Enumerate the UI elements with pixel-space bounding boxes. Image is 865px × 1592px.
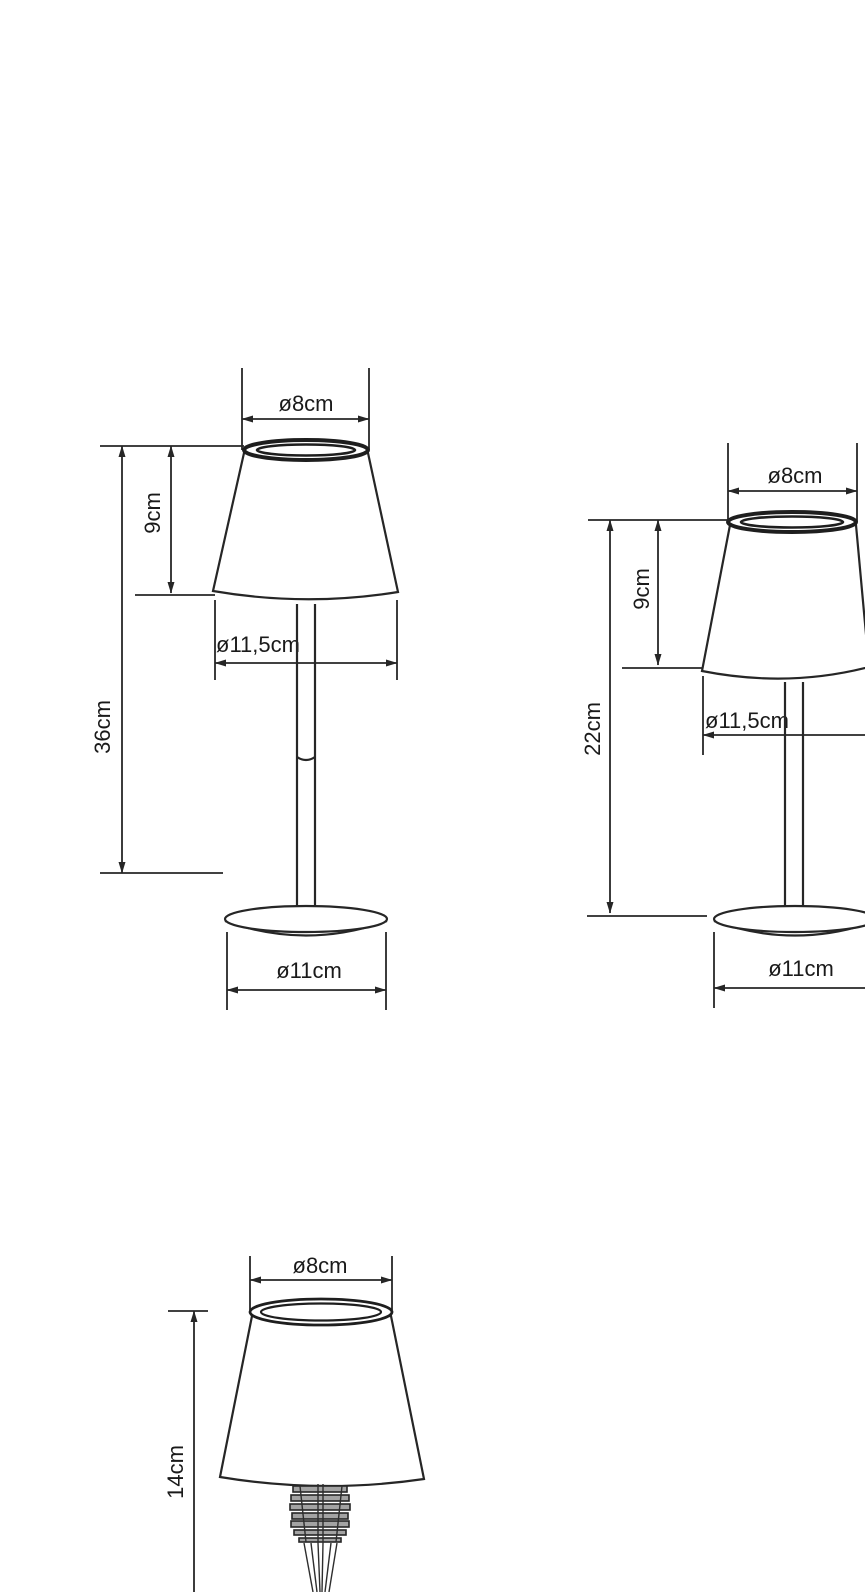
shade-top-ring-outer — [728, 512, 856, 532]
dimension-label-total-height: 14cm — [163, 1445, 188, 1499]
dimension-label-shade-height: 9cm — [140, 492, 165, 534]
dimension-label-total-height: 36cm — [90, 700, 115, 754]
dimension-label-total-height: 22cm — [580, 702, 605, 756]
dimension-label-shade-diameter: ø11,5cm — [216, 632, 300, 657]
dimension-label-shade-height: 9cm — [629, 568, 654, 610]
stopper-spike — [304, 1543, 337, 1592]
spike-prong — [322, 1543, 323, 1592]
view-lamp-tall: ø8cm 36cm 9cm ø11,5cm ø11cm — [90, 368, 398, 1010]
spike-prong — [318, 1543, 320, 1592]
stopper-rib — [291, 1521, 349, 1527]
lamp-base — [225, 906, 387, 932]
technical-drawing: ø8cm 36cm 9cm ø11,5cm ø11cm — [0, 0, 865, 1592]
lamp-shade — [213, 453, 398, 599]
dimension-label-top-diameter: ø8cm — [768, 463, 823, 488]
dimension-label-base-diameter: ø11cm — [768, 956, 834, 981]
lamp-base — [714, 906, 865, 932]
dimension-label-base-diameter: ø11cm — [276, 958, 342, 983]
lamp-shade — [702, 525, 865, 679]
stopper-rib — [290, 1504, 350, 1510]
dimension-label-shade-diameter: ø11,5cm — [705, 708, 789, 733]
dimension-label-top-diameter: ø8cm — [279, 391, 334, 416]
view-lamp-medium: ø8cm 22cm 9cm ø11,5cm ø11cm — [580, 443, 865, 1008]
stopper-ribs — [290, 1484, 350, 1543]
drawing-canvas: ø8cm 36cm 9cm ø11,5cm ø11cm — [0, 0, 865, 1592]
view-lamp-bottle-stopper: ø8cm 14cm — [163, 1253, 424, 1592]
stopper-rib — [294, 1530, 346, 1535]
lamp-shade — [220, 1316, 424, 1486]
dimension-label-top-diameter: ø8cm — [293, 1253, 348, 1278]
shade-top-ring-outer — [244, 440, 368, 460]
stem-joint — [297, 757, 315, 760]
